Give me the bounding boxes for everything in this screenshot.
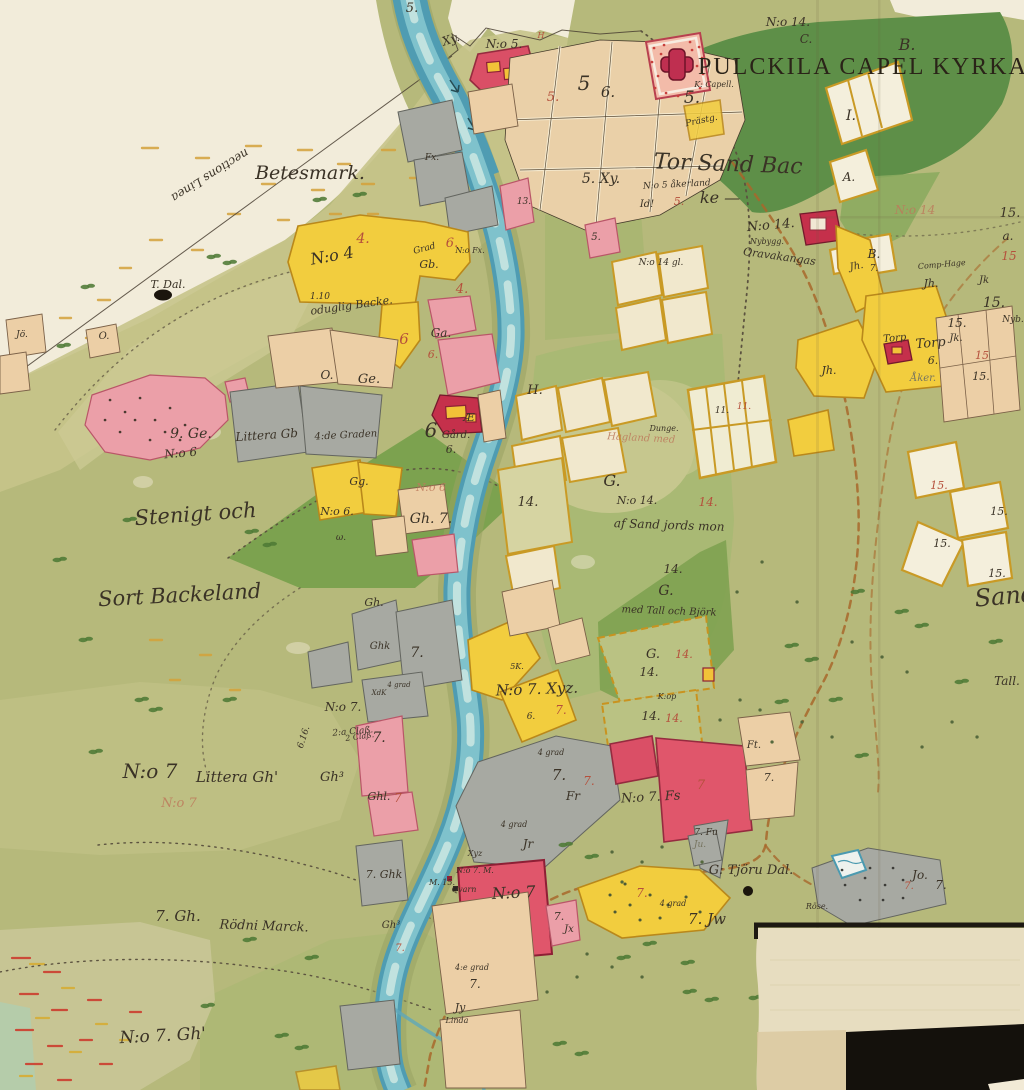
parcels-west <box>0 352 30 394</box>
parcels-west <box>372 516 408 556</box>
map-label: N:o 5. <box>485 37 523 51</box>
map-label: N:o 14 <box>894 203 935 217</box>
map-label: Jk <box>977 275 989 286</box>
map-label: C. <box>800 32 813 46</box>
map-label: 4 grad <box>386 681 411 689</box>
region-tjoru: G: Tjöru Dal. <box>709 863 794 878</box>
map-label: G. <box>603 471 620 490</box>
map-label: 14. <box>675 648 693 661</box>
region-littera-no7: N:o 7 <box>122 759 178 783</box>
map-label: Jh. <box>820 364 837 377</box>
parcels-west <box>412 534 458 576</box>
parcels-north <box>487 61 501 72</box>
parcels-west <box>230 383 308 462</box>
map-label: Xyz <box>467 849 483 858</box>
map-label: 7. <box>552 766 566 784</box>
map-label: 7. <box>395 943 405 954</box>
map-label: 7. <box>555 703 566 717</box>
historical-map: PULCKILA CAPEL KYRKA — Betesmark. nectio… <box>0 0 1024 1090</box>
map-label: 6. <box>527 712 536 722</box>
map-label: 13. <box>517 197 531 207</box>
map-label: I. <box>845 108 856 124</box>
map-label: 7. Ghk <box>366 868 403 881</box>
fold-line <box>816 0 819 930</box>
map-label: 6. <box>446 443 457 456</box>
map-label: 15. <box>947 316 966 330</box>
parcels-south <box>738 712 800 766</box>
region-rodni-2: Rödni Marck. <box>218 917 309 935</box>
map-label: N:o 6. <box>319 505 354 518</box>
map-label: 5. <box>547 90 559 105</box>
map-label: Æ <box>462 411 475 424</box>
map-label: 14. <box>639 665 658 679</box>
map-label: Torp <box>915 335 947 353</box>
map-label: 4. <box>455 282 468 297</box>
parcel-jx <box>546 900 580 946</box>
map-label: 6 <box>399 330 409 348</box>
map-label: 7 <box>394 791 402 805</box>
map-label: 14. <box>663 562 682 576</box>
map-label: 11. <box>737 402 751 412</box>
map-label: N:o 7. Fs <box>620 788 682 806</box>
map-label: H <box>537 31 546 40</box>
map-label: 15. <box>972 370 990 383</box>
parcels-north <box>658 246 708 297</box>
map-label: 15 <box>975 349 989 362</box>
parcels-north <box>468 84 518 134</box>
map-label: Gård. <box>442 429 470 441</box>
map-label: Linda <box>445 1016 469 1025</box>
map-label: N:o 14 gl. <box>638 258 684 268</box>
paper-patch <box>754 923 1024 1090</box>
torp-buildings <box>892 347 902 354</box>
map-label: 5. <box>406 1 418 16</box>
map-label: Qvarn <box>452 885 477 894</box>
map-label: N:o 7. M. <box>455 866 494 875</box>
map-label: B. <box>898 35 916 54</box>
map-label: Jö. <box>14 330 28 340</box>
parcels-south <box>610 736 658 784</box>
pond-tdal <box>154 290 172 301</box>
map-label: 5 <box>578 71 591 95</box>
map-label: 7. <box>935 878 946 892</box>
map-label: Dunge. <box>648 424 678 433</box>
parcels-north <box>662 292 712 343</box>
map-label: 5. <box>684 88 700 108</box>
map-title: PULCKILA CAPEL KYRKA — <box>698 54 1024 80</box>
map-label: G. <box>646 647 660 662</box>
map-label: 14. <box>641 709 660 723</box>
map-label: 7. <box>372 730 385 746</box>
map-label: 6. <box>928 354 939 367</box>
terrain-layer <box>0 682 360 855</box>
map-label: 15. <box>930 479 948 492</box>
map-label: H. <box>526 383 542 398</box>
parcels-east <box>604 372 656 426</box>
map-label: 7. Jw <box>688 910 726 928</box>
map-label: G. <box>658 583 673 599</box>
map-label: 6. <box>601 83 615 101</box>
map-label: Gh³ <box>382 920 400 931</box>
small-building <box>703 668 714 681</box>
map-label: 7. <box>469 977 480 991</box>
map-label: Torp <box>883 332 908 345</box>
map-label: 4 grad <box>537 748 564 757</box>
map-label: 15. <box>983 295 1005 311</box>
parcel-jy <box>432 892 538 1014</box>
map-label: 14. <box>665 712 683 725</box>
map-label: K:op <box>657 692 677 701</box>
map-label: Nyb. <box>1001 315 1024 325</box>
map-label: Jr <box>520 837 535 851</box>
parcels-east <box>558 378 610 432</box>
map-label: T. Dal. <box>150 278 185 291</box>
map-label: 6. <box>428 348 439 361</box>
map-label: O. <box>321 368 334 382</box>
map-label: 15. <box>990 505 1008 518</box>
map-label: Sand <box>973 579 1024 612</box>
map-label: 5. <box>674 195 685 208</box>
map-label: 14. <box>518 495 539 510</box>
map-canvas: PULCKILA CAPEL KYRKA — Betesmark. nectio… <box>0 0 1024 1090</box>
map-label: Gh³ <box>320 770 344 785</box>
map-label: 7. Fu <box>694 828 718 838</box>
terrain-layer <box>286 642 310 654</box>
map-label: Åker. <box>909 372 936 384</box>
map-label: Nybygg. <box>749 237 784 246</box>
map-label: 5. <box>591 232 601 243</box>
region-betesmark: Betesmark. <box>254 162 365 184</box>
terrain-layer <box>133 476 153 488</box>
map-label: Jo. <box>909 868 928 882</box>
map-label: a. <box>1003 229 1014 243</box>
pond-dot <box>743 886 753 896</box>
map-label: N:o 6 <box>163 445 198 462</box>
map-label: Ga. <box>431 326 452 340</box>
map-label: Ju. <box>692 840 706 850</box>
map-label: Id! <box>639 199 654 210</box>
map-label: XdK <box>371 689 387 697</box>
parcels-south <box>340 1000 400 1070</box>
map-label: 14. <box>698 495 717 509</box>
scan-void <box>846 1024 1024 1090</box>
region-torsand-2: ke — <box>700 188 740 207</box>
parcels-west <box>362 672 428 722</box>
map-label: 15 <box>1001 249 1016 263</box>
map-label: Tall. <box>994 674 1020 688</box>
parcels-west <box>358 462 402 516</box>
map-label: 6 <box>425 418 438 442</box>
map-label: 7. <box>870 264 879 274</box>
map-label: 7. <box>904 881 914 892</box>
map-label: 4 grad <box>659 899 686 908</box>
map-label: 5. Xy. <box>582 171 620 187</box>
map-label: B. <box>867 247 881 261</box>
map-label: 11. <box>715 406 729 416</box>
region-littera-gh: Littera Gh' <box>195 768 278 786</box>
map-label: N:o 14. <box>765 15 810 29</box>
map-label: N:o 6 <box>415 481 446 494</box>
map-label: N:o 7 <box>160 796 197 811</box>
map-label: 15. <box>1000 206 1021 221</box>
map-label: 7. <box>636 886 647 900</box>
map-label: 1.10 <box>310 292 330 302</box>
terrain-layer <box>571 555 595 569</box>
map-label: 7. <box>410 645 423 661</box>
map-label: N:o 7. Xyz. <box>494 679 578 700</box>
map-label: ω. <box>336 533 346 543</box>
parcels-north <box>616 298 666 350</box>
map-label: 4:e grad <box>454 963 489 972</box>
map-label: Röse. <box>805 902 828 911</box>
map-label: Fx. <box>424 153 439 163</box>
map-label: N:o 14. <box>616 494 658 507</box>
region-torsand: Tor Sand Bac <box>653 149 803 179</box>
map-label: N:o 7 <box>490 882 536 903</box>
map-label: O. <box>99 331 110 342</box>
map-label: Ge. <box>358 372 380 387</box>
map-label: 5K. <box>510 662 524 671</box>
parcels-west <box>300 386 382 458</box>
map-label: 7. <box>583 774 594 788</box>
map-label: 4. <box>355 231 369 247</box>
map-label: 4 grad <box>500 820 527 829</box>
church-symbol <box>669 49 685 80</box>
map-label: Jh. <box>922 277 939 290</box>
map-label: Ghk <box>370 641 391 652</box>
map-label: Jx <box>562 924 574 935</box>
map-label: 7. <box>554 910 565 923</box>
region-rodni-1: 7. Gh. <box>155 907 201 925</box>
map-label: Gg. <box>349 475 368 488</box>
map-label: Fr <box>565 789 581 803</box>
map-label: 15. <box>988 567 1006 580</box>
map-label: 7 <box>697 778 706 793</box>
strip-block-11 <box>688 376 776 478</box>
map-label: Gb. <box>419 258 438 271</box>
map-label: 15. <box>933 537 951 550</box>
map-label: Jk. <box>947 333 962 344</box>
map-label: Jy <box>453 1001 466 1014</box>
map-label: Gh. 7. <box>410 511 452 527</box>
map-label: Ft. <box>746 740 761 751</box>
map-label: 9. Ge. <box>170 426 212 442</box>
fold-line <box>878 0 881 930</box>
map-label: Ghl. <box>368 790 391 803</box>
paper-patch <box>757 1030 846 1090</box>
map-label: N:o 7. <box>324 700 362 714</box>
map-label: N:o Fx. <box>454 246 484 255</box>
map-label: 7. <box>764 771 775 784</box>
map-label: A. <box>842 170 855 184</box>
map-label: Gh. <box>364 596 383 609</box>
